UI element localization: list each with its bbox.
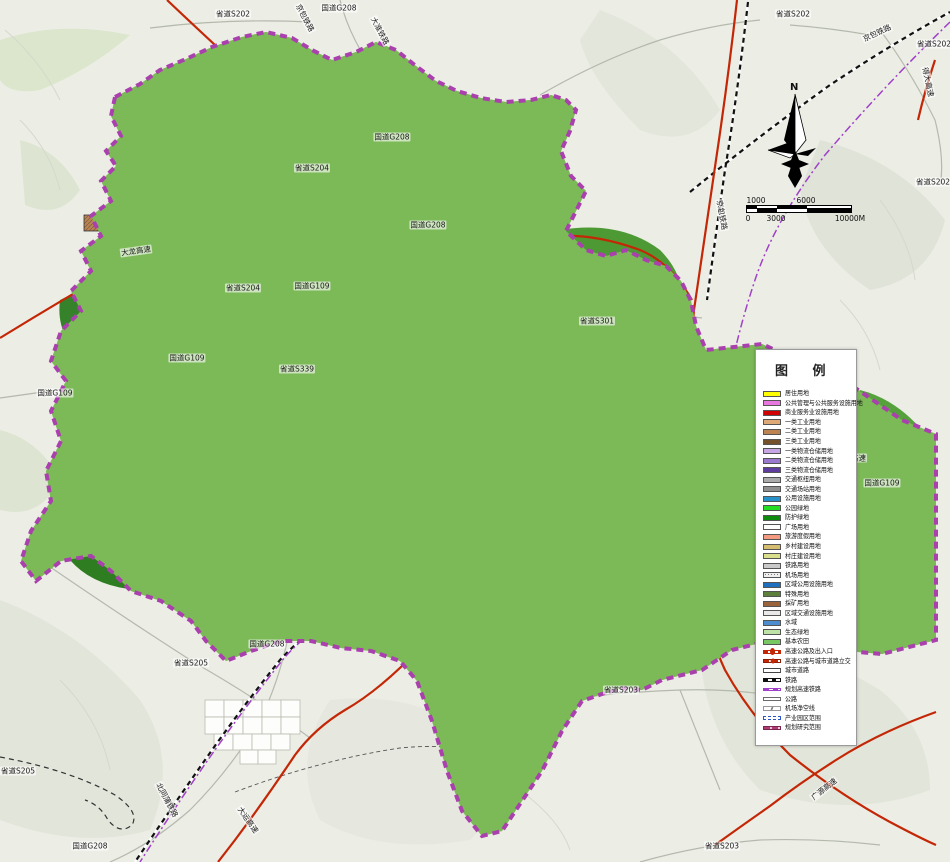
- legend-item-label: 乡村建设用地: [785, 543, 821, 550]
- legend-swatch: [763, 448, 781, 454]
- legend-item-label: 机场净空线: [785, 705, 815, 712]
- legend-swatch: [763, 439, 781, 445]
- scale-label: 1000: [746, 196, 765, 205]
- legend-swatch: [763, 678, 781, 682]
- legend-item: 乡村建设用地: [763, 542, 856, 552]
- legend-item-label: 採矿用地: [785, 600, 809, 607]
- legend-item: 基本农田: [763, 637, 856, 647]
- legend-swatch: [763, 629, 781, 635]
- legend-item-label: 二类工业用地: [785, 428, 821, 435]
- scale-label: 3000: [766, 214, 785, 223]
- road-label: 国道G109: [36, 389, 73, 398]
- legend-swatch: [763, 668, 781, 673]
- legend-item: 规划研究范围: [763, 723, 856, 733]
- legend-item-label: 旅游度假用地: [785, 533, 821, 540]
- legend-item-label: 一类工业用地: [785, 419, 821, 426]
- legend-swatch: [763, 620, 781, 626]
- legend-item: 机场净空线: [763, 704, 856, 714]
- legend-item: 特殊用地: [763, 589, 856, 599]
- road-label: 国道G109: [168, 354, 205, 363]
- legend-swatch: [763, 601, 781, 607]
- road-label: 国道G208: [248, 640, 285, 649]
- legend-item-label: 村庄建设用地: [785, 553, 821, 560]
- legend-item-label: 规划研究范围: [785, 724, 821, 731]
- legend-swatch: [763, 400, 781, 406]
- road-label: 国道G109: [293, 282, 330, 291]
- legend-item: 二类物流仓储用地: [763, 456, 856, 466]
- legend-item-label: 公共管理与公共服务设施用地: [785, 400, 863, 407]
- road-label: 省道S205: [173, 659, 209, 668]
- legend-item: 交通枢纽用地: [763, 475, 856, 485]
- legend-swatch: [763, 544, 781, 550]
- legend-panel: 图 例 居住用地公共管理与公共服务设施用地商业服务业设施用地一类工业用地二类工业…: [755, 349, 857, 746]
- legend-item: 採矿用地: [763, 599, 856, 609]
- legend-swatch: [763, 419, 781, 425]
- legend-item-label: 广场用地: [785, 524, 809, 531]
- legend-swatch: [763, 639, 781, 645]
- legend-item: 三类工业用地: [763, 437, 856, 447]
- legend-item: 一类工业用地: [763, 418, 856, 428]
- legend-swatch: [763, 458, 781, 464]
- legend-item: 居住用地: [763, 389, 856, 399]
- legend-item: 区域公用设施用地: [763, 580, 856, 590]
- legend-item-label: 居住用地: [785, 390, 809, 397]
- legend-item-label: 机场用地: [785, 572, 809, 579]
- road-label: 省道S202: [916, 40, 950, 49]
- road-label: 省道S339: [279, 365, 315, 374]
- legend-item-label: 三类物流仓储用地: [785, 467, 833, 474]
- legend-swatch: [763, 477, 781, 483]
- legend-item-label: 防护绿地: [785, 514, 809, 521]
- legend-item: 水域: [763, 618, 856, 628]
- road-label: 国道G109: [863, 479, 900, 488]
- legend-item: 一类物流仓储用地: [763, 446, 856, 456]
- legend-swatch: [763, 659, 781, 663]
- legend-item-label: 城市道路: [785, 667, 809, 674]
- legend-swatch: [763, 688, 781, 692]
- road-label: 国道G208: [71, 842, 108, 851]
- legend-item: 区域交通设施用地: [763, 609, 856, 619]
- legend-swatch: [763, 650, 781, 654]
- legend-item: 公路: [763, 695, 856, 705]
- road-label: 国道G208: [409, 221, 446, 230]
- legend-item-label: 特殊用地: [785, 591, 809, 598]
- legend-swatch: [763, 591, 781, 597]
- legend-item: 铁路: [763, 675, 856, 685]
- scale-label: 0: [746, 214, 751, 223]
- legend-item: 商业服务业设施用地: [763, 408, 856, 418]
- legend-item: 高速公路与城市道路立交: [763, 656, 856, 666]
- legend-item-label: 公用设施用地: [785, 495, 821, 502]
- legend-title: 图 例: [775, 360, 856, 379]
- legend-item-label: 区域交通设施用地: [785, 610, 833, 617]
- legend-item: 高速公路及出入口: [763, 647, 856, 657]
- scale-label: 6000: [796, 196, 815, 205]
- road-label: 省道S202: [915, 178, 950, 187]
- legend-item-label: 商业服务业设施用地: [785, 409, 839, 416]
- north-label: N: [790, 82, 798, 93]
- legend-item: 产业园区范围: [763, 714, 856, 724]
- legend-item-label: 基本农田: [785, 638, 809, 645]
- scale-bar-bottom-row: [746, 208, 852, 213]
- road-label: 国道G208: [373, 133, 410, 142]
- scale-bar: 10006000 0300010000M: [742, 196, 870, 224]
- legend-item: 生态绿地: [763, 628, 856, 638]
- legend-swatch: [763, 572, 781, 578]
- legend-item-label: 高速公路及出入口: [785, 648, 833, 655]
- road-label: 国道G208: [320, 4, 357, 13]
- scale-label: 10000M: [835, 214, 865, 223]
- compass-rose: N: [764, 84, 826, 192]
- legend-item: 交通场站用地: [763, 484, 856, 494]
- road-label: 省道S203: [603, 686, 639, 695]
- legend-item: 公园绿地: [763, 504, 856, 514]
- legend-item-label: 交通枢纽用地: [785, 476, 821, 483]
- legend-swatch: [763, 553, 781, 559]
- legend-item-label: 高速公路与城市道路立交: [785, 658, 851, 665]
- legend-item: 广场用地: [763, 523, 856, 533]
- road-label: 省道S202: [775, 10, 811, 19]
- legend-item-label: 一类物流仓储用地: [785, 448, 833, 455]
- legend-swatch: [763, 524, 781, 530]
- legend-swatch: [763, 534, 781, 540]
- road-label: 省道S204: [294, 164, 330, 173]
- legend-swatch: [763, 515, 781, 521]
- legend-swatch: [763, 706, 781, 711]
- legend-swatch: [763, 410, 781, 416]
- legend-swatch: [763, 726, 781, 731]
- legend-swatch: [763, 391, 781, 397]
- legend-item-label: 规划高速铁路: [785, 686, 821, 693]
- legend-items: 居住用地公共管理与公共服务设施用地商业服务业设施用地一类工业用地二类工业用地三类…: [763, 389, 856, 733]
- road-label: 省道S301: [579, 317, 615, 326]
- legend-item: 二类工业用地: [763, 427, 856, 437]
- legend-item: 铁路用地: [763, 561, 856, 571]
- legend-item-label: 公路: [785, 696, 797, 703]
- legend-item: 旅游度假用地: [763, 532, 856, 542]
- legend-item-label: 生态绿地: [785, 629, 809, 636]
- legend-item-label: 铁路: [785, 677, 797, 684]
- legend-item-label: 交通场站用地: [785, 486, 821, 493]
- legend-swatch: [763, 486, 781, 492]
- legend-item-label: 铁路用地: [785, 562, 809, 569]
- legend-swatch: [763, 429, 781, 435]
- road-label: 省道S203: [704, 842, 740, 851]
- legend-item: 城市道路: [763, 666, 856, 676]
- legend-swatch: [763, 563, 781, 569]
- legend-swatch: [763, 467, 781, 473]
- legend-item: 机场用地: [763, 570, 856, 580]
- legend-swatch: [763, 505, 781, 511]
- legend-item: 规划高速铁路: [763, 685, 856, 695]
- legend-item: 公共管理与公共服务设施用地: [763, 399, 856, 409]
- legend-swatch: [763, 496, 781, 502]
- legend-item-label: 三类工业用地: [785, 438, 821, 445]
- legend-item: 防护绿地: [763, 513, 856, 523]
- legend-item-label: 公园绿地: [785, 505, 809, 512]
- legend-item-label: 区域公用设施用地: [785, 581, 833, 588]
- compass-rose-icon: [764, 84, 826, 192]
- legend-swatch: [763, 610, 781, 616]
- legend-item-label: 产业园区范围: [785, 715, 821, 722]
- road-label: 省道S204: [225, 284, 261, 293]
- planning-map[interactable]: 省道S202国道G208京包铁路大准铁路省道S202京包铁路省道S202得大高速…: [0, 0, 950, 862]
- legend-item-label: 水域: [785, 619, 797, 626]
- legend-item-label: 二类物流仓储用地: [785, 457, 833, 464]
- legend-swatch: [763, 582, 781, 588]
- legend-item: 村庄建设用地: [763, 551, 856, 561]
- road-label: 省道S202: [215, 10, 251, 19]
- legend-swatch: [763, 716, 781, 720]
- legend-swatch: [763, 697, 781, 701]
- legend-item: 三类物流仓储用地: [763, 465, 856, 475]
- road-label: 省道S205: [0, 767, 36, 776]
- legend-item: 公用设施用地: [763, 494, 856, 504]
